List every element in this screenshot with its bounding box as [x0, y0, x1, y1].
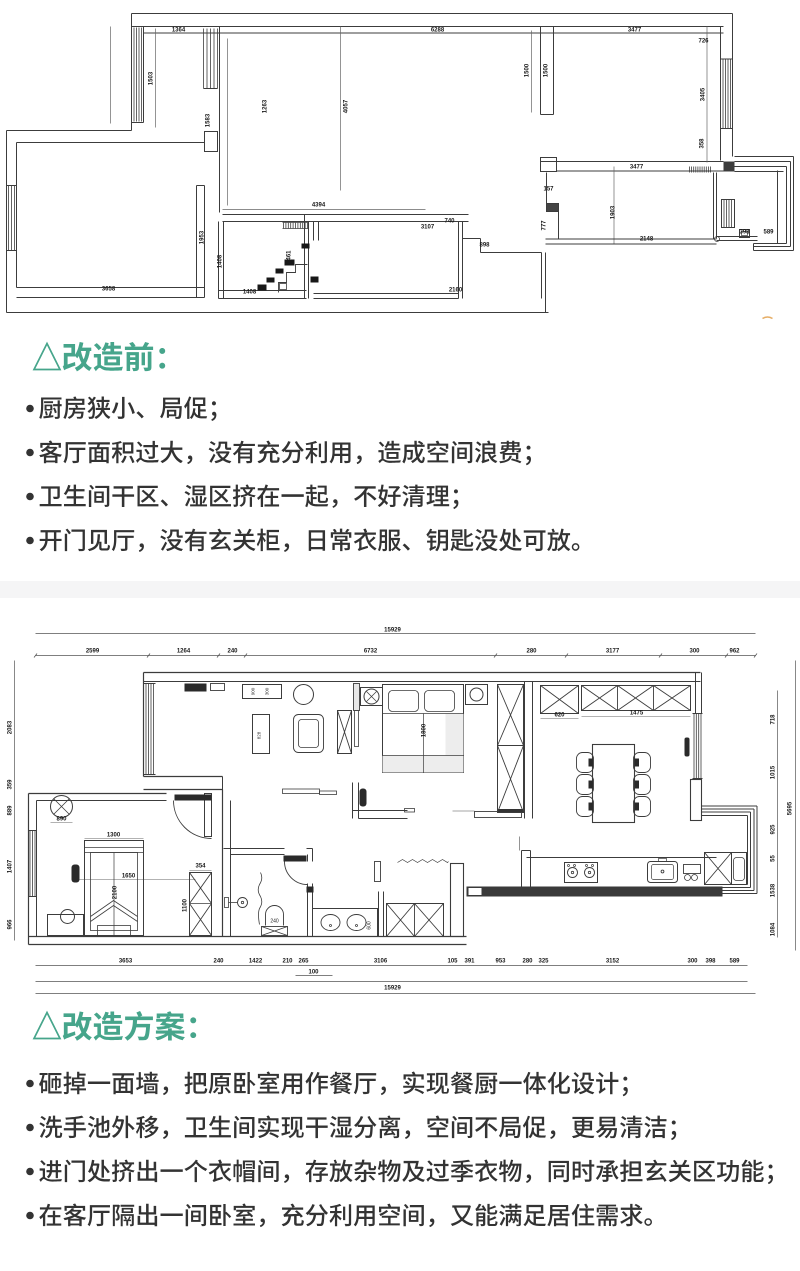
svg-text:280: 280: [526, 649, 537, 655]
svg-text:1300: 1300: [107, 833, 121, 839]
svg-text:589: 589: [729, 959, 740, 965]
svg-text:898: 898: [479, 243, 490, 249]
svg-text:889: 889: [8, 805, 14, 816]
svg-text:1100: 1100: [183, 898, 189, 912]
svg-text:1500: 1500: [525, 63, 531, 77]
svg-text:398: 398: [705, 959, 716, 965]
svg-text:1903: 1903: [611, 205, 617, 219]
svg-text:777: 777: [542, 220, 548, 231]
svg-text:890: 890: [56, 817, 67, 823]
svg-text:600: 600: [367, 921, 373, 930]
svg-text:1503: 1503: [149, 71, 155, 85]
svg-text:726: 726: [698, 39, 709, 45]
svg-text:240: 240: [227, 649, 238, 655]
svg-text:1538: 1538: [771, 883, 777, 897]
svg-text:1084: 1084: [771, 922, 777, 936]
svg-text:210: 210: [282, 959, 293, 965]
svg-text:6288: 6288: [431, 28, 445, 34]
svg-text:3653: 3653: [119, 959, 133, 965]
svg-text:1422: 1422: [249, 959, 263, 965]
svg-text:2083: 2083: [8, 720, 14, 734]
svg-text:265: 265: [298, 959, 309, 965]
svg-text:3107: 3107: [421, 225, 435, 231]
svg-text:3106: 3106: [374, 959, 388, 965]
svg-text:953: 953: [495, 959, 506, 965]
svg-text:828: 828: [257, 731, 262, 739]
svg-text:300: 300: [689, 649, 700, 655]
svg-text:325: 325: [538, 959, 549, 965]
svg-text:2160: 2160: [449, 288, 463, 294]
svg-text:100: 100: [308, 970, 319, 976]
svg-text:358: 358: [700, 138, 706, 149]
svg-text:3152: 3152: [606, 959, 620, 965]
svg-text:391: 391: [464, 959, 475, 965]
svg-text:398: 398: [739, 230, 750, 236]
svg-text:1650: 1650: [122, 874, 136, 880]
svg-text:55: 55: [771, 855, 777, 862]
svg-text:105: 105: [447, 959, 458, 965]
svg-text:718: 718: [771, 714, 777, 725]
svg-text:1800: 1800: [422, 723, 428, 737]
svg-text:280: 280: [522, 959, 533, 965]
svg-text:300: 300: [687, 959, 698, 965]
svg-text:1500: 1500: [544, 63, 550, 77]
svg-text:5695: 5695: [788, 801, 794, 815]
svg-text:1953: 1953: [200, 230, 206, 244]
svg-text:2148: 2148: [640, 237, 654, 243]
svg-text:966: 966: [8, 919, 14, 930]
svg-text:1583: 1583: [206, 113, 212, 127]
svg-text:359: 359: [8, 779, 14, 790]
svg-text:589: 589: [763, 230, 774, 236]
svg-text:354: 354: [195, 864, 206, 870]
svg-text:962: 962: [729, 649, 740, 655]
svg-text:1264: 1264: [177, 649, 191, 655]
svg-text:4394: 4394: [312, 203, 326, 209]
svg-text:461: 461: [287, 250, 293, 261]
svg-text:900: 900: [251, 687, 256, 695]
svg-text:3477: 3477: [630, 165, 644, 171]
svg-text:1408: 1408: [243, 290, 257, 296]
svg-text:1407: 1407: [8, 859, 14, 873]
svg-text:1263: 1263: [263, 99, 269, 113]
svg-text:925: 925: [771, 824, 777, 835]
svg-text:3405: 3405: [701, 87, 707, 101]
svg-text:1015: 1015: [771, 765, 777, 779]
svg-text:240: 240: [270, 919, 279, 925]
svg-text:240: 240: [213, 959, 224, 965]
svg-text:620: 620: [554, 713, 565, 719]
svg-text:4057: 4057: [344, 99, 350, 113]
svg-text:2599: 2599: [86, 649, 100, 655]
svg-text:15929: 15929: [384, 986, 401, 992]
svg-text:15929: 15929: [384, 628, 401, 634]
svg-text:1408: 1408: [218, 254, 224, 268]
svg-text:740: 740: [444, 219, 455, 225]
svg-text:3477: 3477: [628, 28, 642, 34]
svg-text:3177: 3177: [606, 649, 620, 655]
svg-text:300: 300: [265, 687, 270, 695]
svg-text:157: 157: [543, 187, 554, 193]
svg-text:2100: 2100: [113, 885, 119, 899]
svg-text:3658: 3658: [102, 287, 116, 293]
svg-text:6732: 6732: [364, 649, 378, 655]
svg-text:1475: 1475: [630, 711, 644, 717]
svg-text:1364: 1364: [172, 28, 186, 34]
